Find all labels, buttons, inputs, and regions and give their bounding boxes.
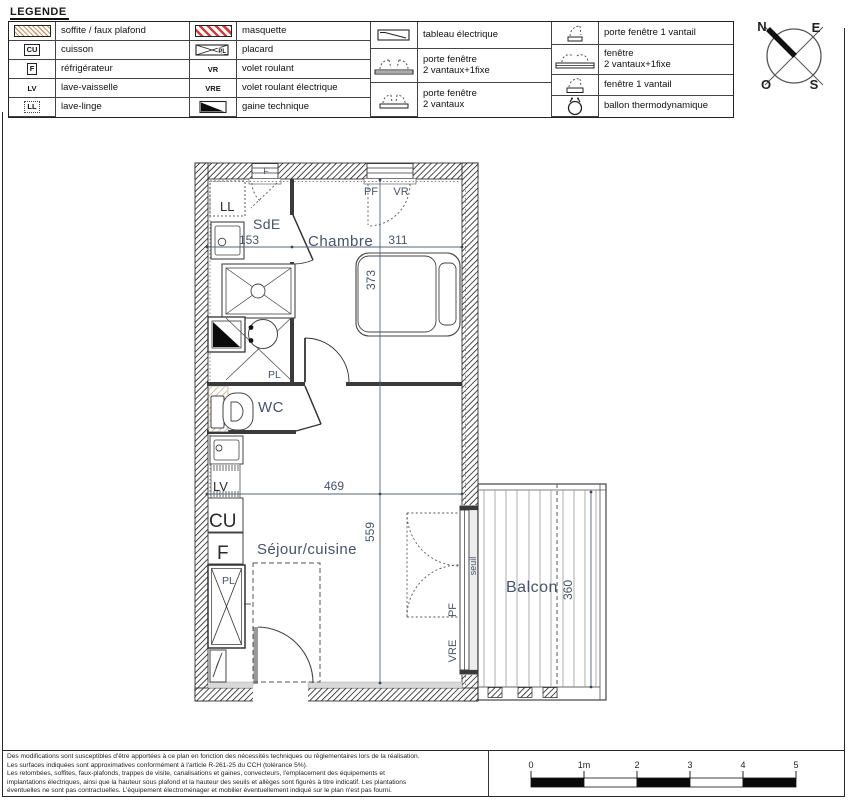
disclaimer-line: Les retombées, soffites, faux-plafonds, … — [7, 770, 483, 779]
legend-group-4: porte fenêtre 1 vantailfenêtre 2 vantaux… — [552, 22, 733, 117]
room-label-balcon: Balcon — [506, 579, 558, 596]
tag-vre-sejour: VRE — [447, 640, 459, 663]
scale-label-1m: 1m — [578, 760, 591, 770]
legend-item-label: porte fenêtre 2 vantaux+1fixe — [418, 49, 552, 83]
scale-label-5: 5 — [793, 760, 798, 770]
legend-group-1: soffite / faux plafondCUcuissonFréfrigér… — [9, 22, 190, 117]
compass-north-arrow — [768, 29, 795, 56]
scale-label-2: 2 — [634, 760, 639, 770]
shower-tray — [222, 264, 295, 318]
porte-fenetre-2v1f-icon — [371, 49, 418, 83]
scale-label-0: 0 — [528, 760, 533, 770]
soffite-hatch-icon — [9, 22, 56, 41]
label-ll: LL — [220, 199, 234, 214]
fenetre-1v-icon — [552, 75, 599, 96]
tag-pl-sejour: PL — [222, 575, 235, 587]
legend-item-label: réfrigérateur — [56, 60, 190, 79]
door-wc — [296, 386, 321, 431]
ballon-thermodynamique — [249, 320, 278, 349]
scale-bar-segments — [531, 778, 796, 787]
scale-bar: 0 1m 2 3 4 5 — [489, 750, 845, 797]
legend-item-label: porte fenêtre 1 vantail — [599, 22, 733, 45]
room-label-sde: SdE — [253, 216, 281, 232]
legend-item-label: placard — [237, 41, 371, 60]
floor-plan-page: LEGENDE soffite / faux plafondCUcuissonF… — [0, 0, 849, 800]
door-chambre — [305, 338, 349, 382]
legend-title: LEGENDE — [10, 6, 69, 20]
legend-item-label: volet roulant — [237, 60, 371, 79]
volet-roulant-icon: VR — [190, 60, 237, 79]
room-label-wc: WC — [258, 399, 284, 416]
balcony-posts — [488, 688, 557, 698]
disclaimer-line: Des modifications sont susceptibles d'êt… — [7, 753, 483, 762]
tableau-electrique-icon — [371, 22, 418, 49]
legend-item-label: lave-vaisselle — [56, 79, 190, 98]
legend-item-label: tableau électrique — [418, 22, 552, 49]
room-label-chambre: Chambre — [308, 233, 373, 250]
fenetre-2v1f-icon — [552, 45, 599, 75]
room-label-sejour: Séjour/cuisine — [257, 541, 357, 558]
scale-label-4: 4 — [740, 760, 745, 770]
svg-text:PL: PL — [218, 49, 226, 55]
dim-sde-width: 153 — [239, 233, 259, 247]
tableau-electrique — [210, 650, 226, 682]
tag-window-f: F — [263, 166, 269, 176]
floor-plan-drawing: SdE Chambre WC Séjour/cuisine Balcon 153… — [0, 110, 849, 750]
label-f: F — [217, 543, 229, 564]
label-cu: CU — [209, 511, 236, 532]
cuisson-icon: CU — [9, 41, 56, 60]
tag-pf-sejour: PF — [447, 603, 459, 617]
refrigerateur-icon: F — [9, 60, 56, 79]
compass-s-label: S — [810, 77, 819, 92]
tag-seuil: seuil — [468, 557, 478, 576]
bottom-wall-inner-band — [208, 682, 253, 688]
dim-sejour-width: 469 — [324, 479, 344, 493]
tag-vr-chambre: VR — [393, 186, 408, 198]
dim-balcon-height: 360 — [561, 580, 575, 600]
scale-label-3: 3 — [687, 760, 692, 770]
dim-chambre-width: 311 — [388, 233, 407, 247]
window-chambre — [364, 164, 416, 185]
legend-group-2: masquettePLplacardVRvolet roulantVREvole… — [190, 22, 371, 117]
legend-item-label: masquette — [237, 22, 371, 41]
legend-item-label: cuisson — [56, 41, 190, 60]
label-lv: LV — [213, 479, 228, 494]
porte-fenetre-1v-icon — [552, 22, 599, 45]
compass-rose: N E O S — [752, 14, 836, 98]
gaine-technique — [208, 317, 245, 352]
legend: LEGENDE soffite / faux plafondCUcuissonF… — [8, 2, 734, 118]
dim-chambre-height: 373 — [364, 270, 378, 290]
tag-pf-chambre: PF — [364, 186, 378, 198]
legend-table: soffite / faux plafondCUcuissonFréfrigér… — [8, 21, 734, 118]
lave-vaisselle-icon: LV — [9, 79, 56, 98]
disclaimer-line: éventuelles ne sont pas contractuelles. … — [7, 787, 483, 796]
legend-item-label: soffite / faux plafond — [56, 22, 190, 41]
legend-item-label: fenêtre 2 vantaux+1fixe — [599, 45, 733, 75]
compass-o-label: O — [761, 77, 771, 92]
volet-roulant-electrique-icon: VRE — [190, 79, 237, 98]
legend-item-label: fenêtre 1 vantail — [599, 75, 733, 96]
bed — [356, 253, 460, 336]
door-entry — [254, 627, 314, 684]
masquette-hatch-icon — [190, 22, 237, 41]
footer-disclaimer: Des modifications sont susceptibles d'êt… — [2, 750, 489, 797]
dim-sejour-height: 559 — [363, 522, 377, 542]
disclaimer-line: Les surfaces indiquées sont approximativ… — [7, 762, 483, 771]
compass-e-label: E — [812, 20, 821, 35]
legend-item-label: volet roulant électrique — [237, 79, 371, 98]
bottom-wall-inner-band — [308, 682, 462, 688]
placard-icon: PL — [190, 41, 237, 60]
kitchen-sink — [210, 436, 243, 464]
porte-fenetre-balcon — [459, 505, 479, 675]
disclaimer-line: implantations électriques, ainsi que la … — [7, 779, 483, 788]
toilet — [211, 393, 253, 430]
compass-n-label: N — [757, 19, 766, 34]
legend-group-3: tableau électriqueporte fenêtre 2 vantau… — [371, 22, 552, 117]
tag-pl-bath: PL — [268, 369, 281, 381]
footer-scale-box: 0 1m 2 3 4 5 — [489, 750, 845, 797]
